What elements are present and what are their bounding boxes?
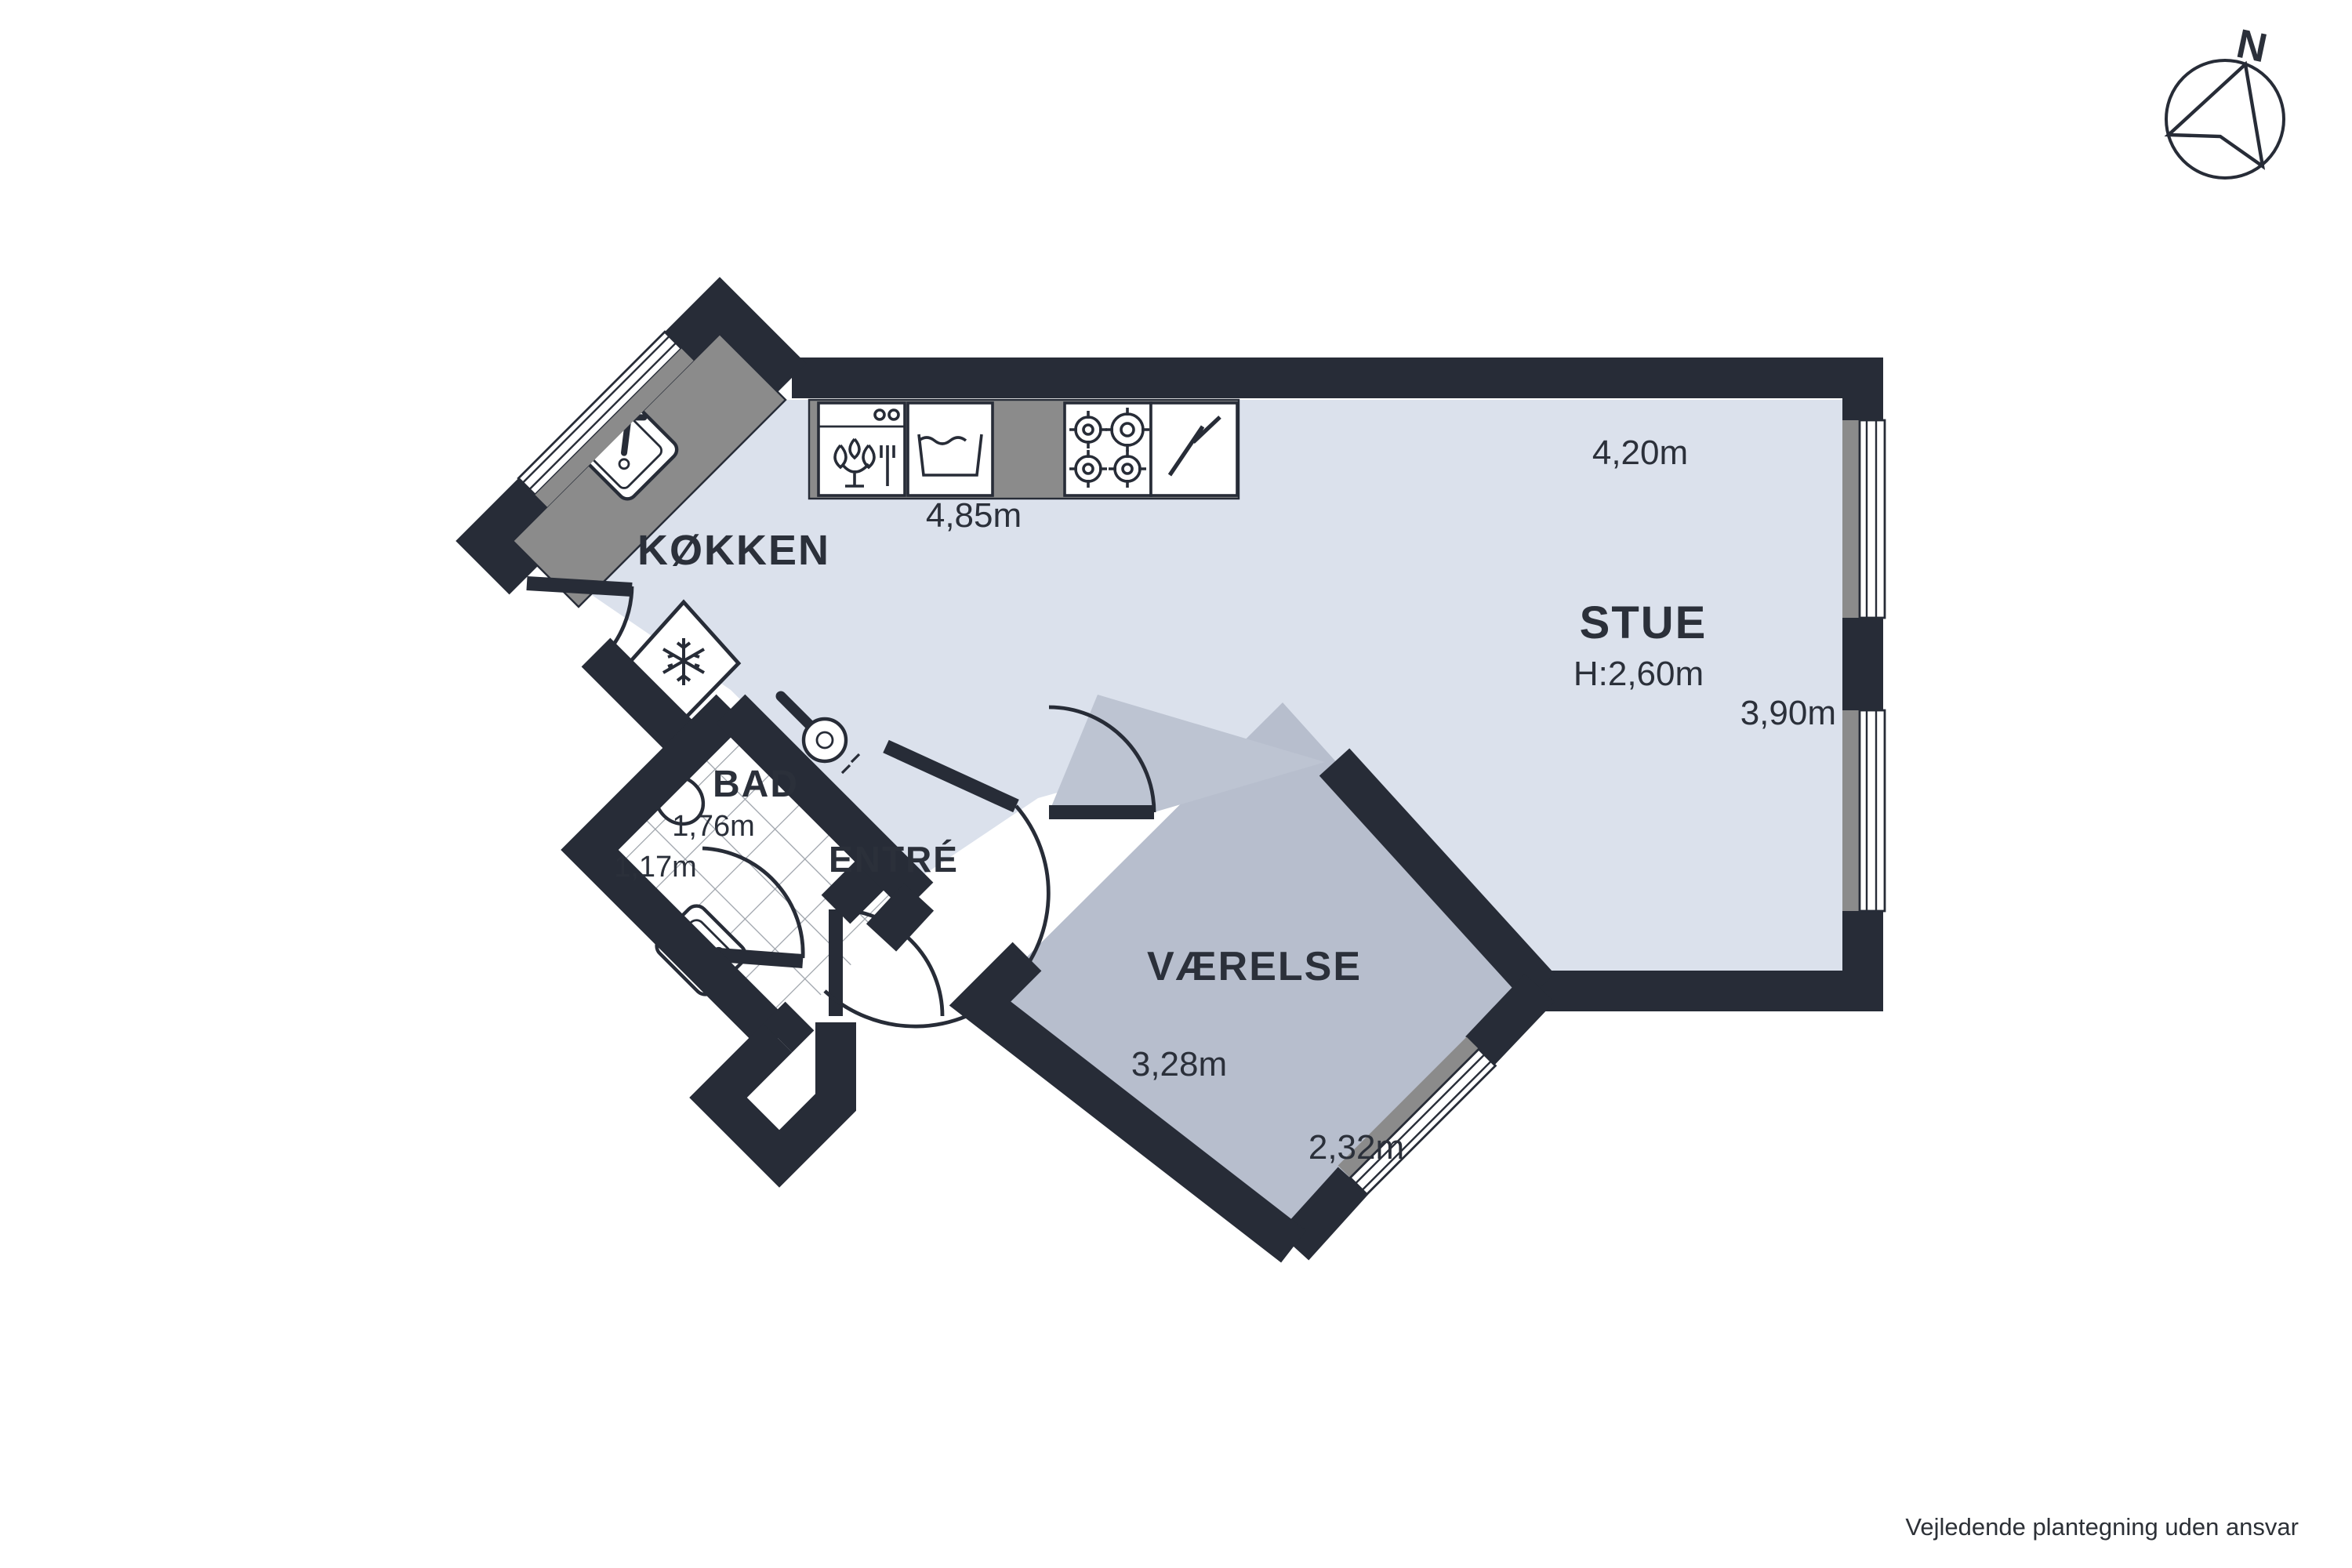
- room-label-entre: ENTRÉ: [829, 839, 959, 880]
- kitchen-basin-icon: [908, 403, 993, 495]
- measure-bad-depth: 1,17m: [614, 851, 697, 884]
- measure-koekken-counter: 4,85m: [926, 496, 1022, 535]
- compass-north-icon: N: [2166, 21, 2284, 178]
- measure-bad-width: 1,76m: [672, 810, 755, 843]
- measure-stue-depth: 3,90m: [1740, 694, 1836, 732]
- measure-vaerelse-depth: 2,32m: [1308, 1128, 1404, 1167]
- room-label-bad: BAD: [713, 764, 799, 805]
- window-stue-right-2: [1842, 710, 1885, 911]
- room-label-vaerelse: VÆRELSE: [1147, 944, 1362, 989]
- measure-vaerelse-width: 3,28m: [1131, 1045, 1227, 1083]
- measure-stue-height: H:2,60m: [1573, 655, 1704, 693]
- dishwasher-icon: [818, 403, 905, 495]
- window-stue-right-1: [1842, 420, 1885, 618]
- electric-stove-icon: [1151, 403, 1237, 495]
- floor-plan: KØKKEN 4,85m STUE H:2,60m 4,20m 3,90m BA…: [0, 0, 2352, 1568]
- room-label-stue: STUE: [1580, 597, 1708, 648]
- measure-stue-width: 4,20m: [1592, 434, 1688, 472]
- room-label-koekken: KØKKEN: [637, 527, 830, 574]
- disclaimer-text: Vejledende plantegning uden ansvar: [1905, 1513, 2299, 1541]
- compass-north-label: N: [2233, 21, 2271, 72]
- cooktop-icon: [1065, 403, 1151, 495]
